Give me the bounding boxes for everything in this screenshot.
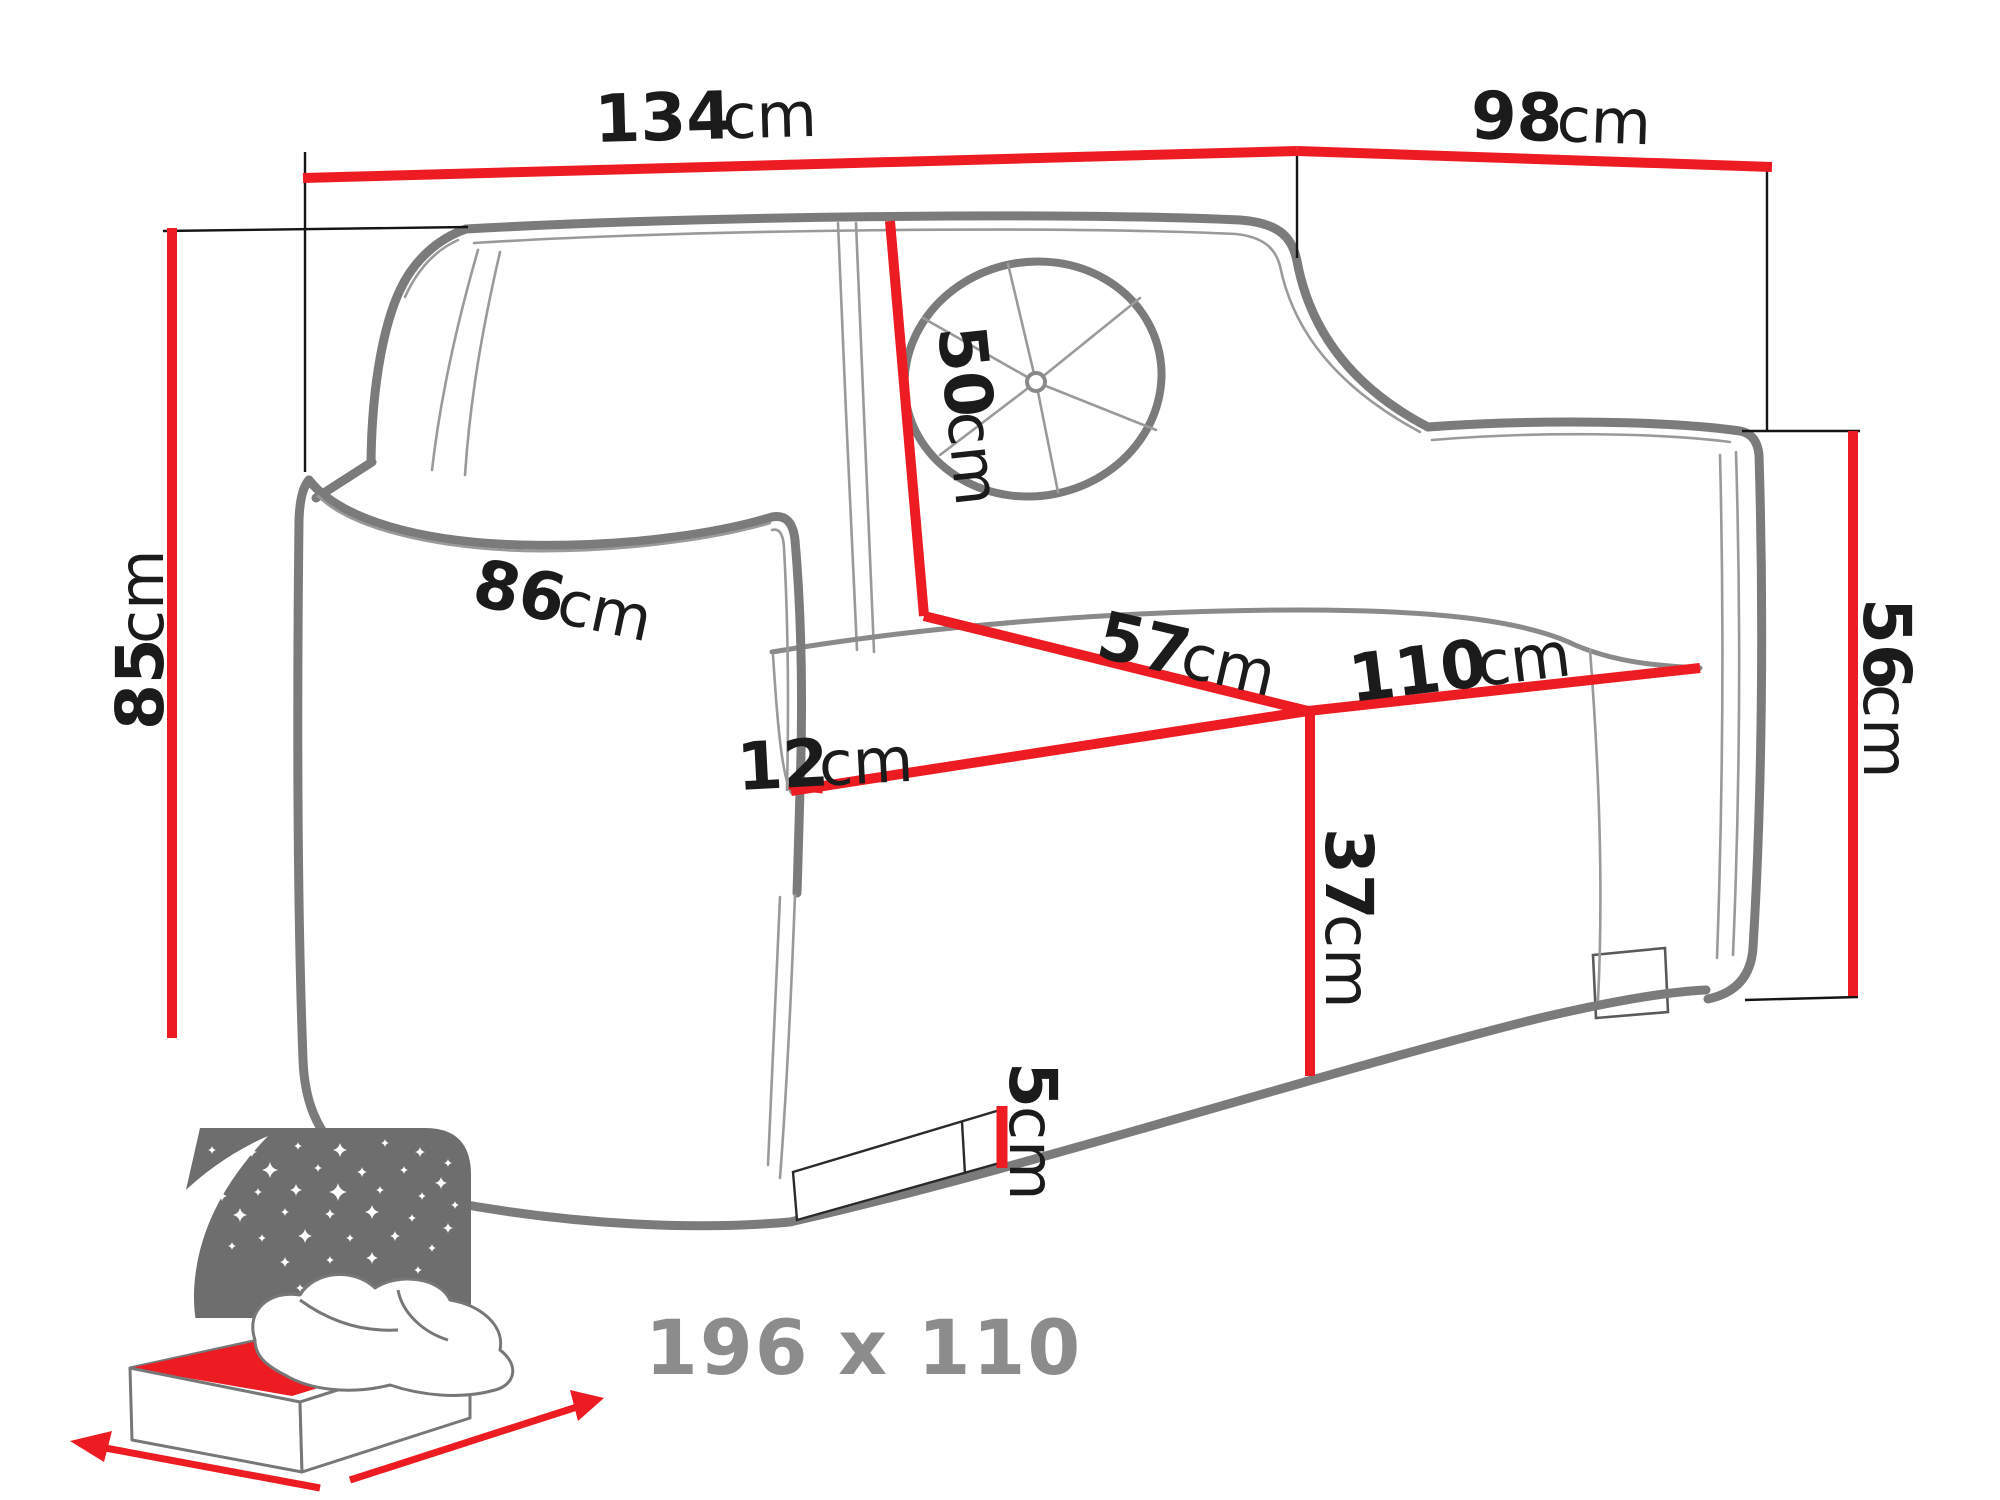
label-width-134: 134 cm — [593, 75, 818, 158]
front-leg-bar — [793, 1110, 1003, 1220]
label-height-85-value: 85 — [102, 638, 179, 730]
right-armrest-top-inner-seam — [1432, 434, 1730, 442]
label-depth-98: 98 cm — [1469, 77, 1652, 160]
label-backrest-50-unit: cm — [932, 407, 1014, 509]
backrest-center-seam-a — [838, 223, 857, 650]
pillow-button — [1027, 373, 1045, 391]
label-width-134-unit: cm — [721, 78, 817, 154]
label-seat-depth-57-unit: cm — [1174, 619, 1282, 711]
base-front-seam-b — [768, 897, 780, 1165]
label-front-height-37-unit: cm — [1311, 914, 1384, 1008]
label-seat-depth-57: 57 cm — [1090, 597, 1283, 713]
label-seat-width-110-unit: cm — [1472, 617, 1575, 701]
label-armrest-86: 86 cm — [467, 544, 660, 657]
ext-top-left-horizontal — [163, 227, 468, 231]
label-leg-height-5-unit: cm — [995, 1106, 1068, 1200]
backrest-left-edge — [371, 229, 466, 462]
base-front-seam-a — [780, 895, 795, 1178]
dim-width-134-line — [303, 151, 1297, 178]
label-armrest-12-unit: cm — [817, 723, 915, 801]
left-armrest-top-and-front-edge — [309, 480, 802, 893]
label-side-height-56: 56 cm — [1848, 598, 1925, 778]
label-depth-98-value: 98 — [1469, 77, 1563, 157]
label-side-height-56-unit: cm — [1849, 684, 1922, 778]
label-seat-width-110: 110 cm — [1345, 614, 1575, 718]
label-height-85: 85 cm — [102, 550, 179, 730]
label-leg-height-5: 5 cm — [994, 1062, 1071, 1200]
label-height-85-unit: cm — [105, 550, 178, 644]
backrest-center-seam-b — [856, 223, 874, 652]
label-seat-width-110-value: 110 — [1345, 625, 1491, 718]
label-armrest-12-value: 12 — [735, 724, 831, 806]
right-armrest-front-inner-seam-a — [1733, 452, 1739, 955]
ext-right-bottom-horizontal — [1745, 997, 1858, 1000]
sleeping-size-label: 196 x 110 — [645, 1303, 1082, 1392]
backrest-cushion-seam-left-a — [432, 250, 478, 470]
backrest-cushion-seam-left-b — [465, 252, 500, 475]
label-width-134-value: 134 — [593, 77, 733, 158]
label-armrest-86-unit: cm — [551, 565, 659, 656]
label-armrest-12: 12 cm — [735, 720, 915, 806]
label-backrest-50-value: 50 — [922, 322, 1008, 421]
diagram-canvas: 134 cm 98 cm 85 cm 50 cm 86 cm 12 cm 57 … — [0, 0, 2000, 1500]
label-side-height-56-value: 56 — [1848, 598, 1925, 690]
label-front-height-37-value: 37 — [1310, 828, 1387, 920]
label-front-height-37: 37 cm — [1310, 828, 1387, 1008]
label-depth-98-unit: cm — [1555, 83, 1652, 159]
furniture-dimension-diagram: 134 cm 98 cm 85 cm 50 cm 86 cm 12 cm 57 … — [0, 0, 2000, 1500]
seat-right-edge — [1590, 650, 1600, 1000]
right-armrest-front-inner-seam-b — [1717, 455, 1722, 958]
label-leg-height-5-value: 5 — [994, 1062, 1071, 1108]
